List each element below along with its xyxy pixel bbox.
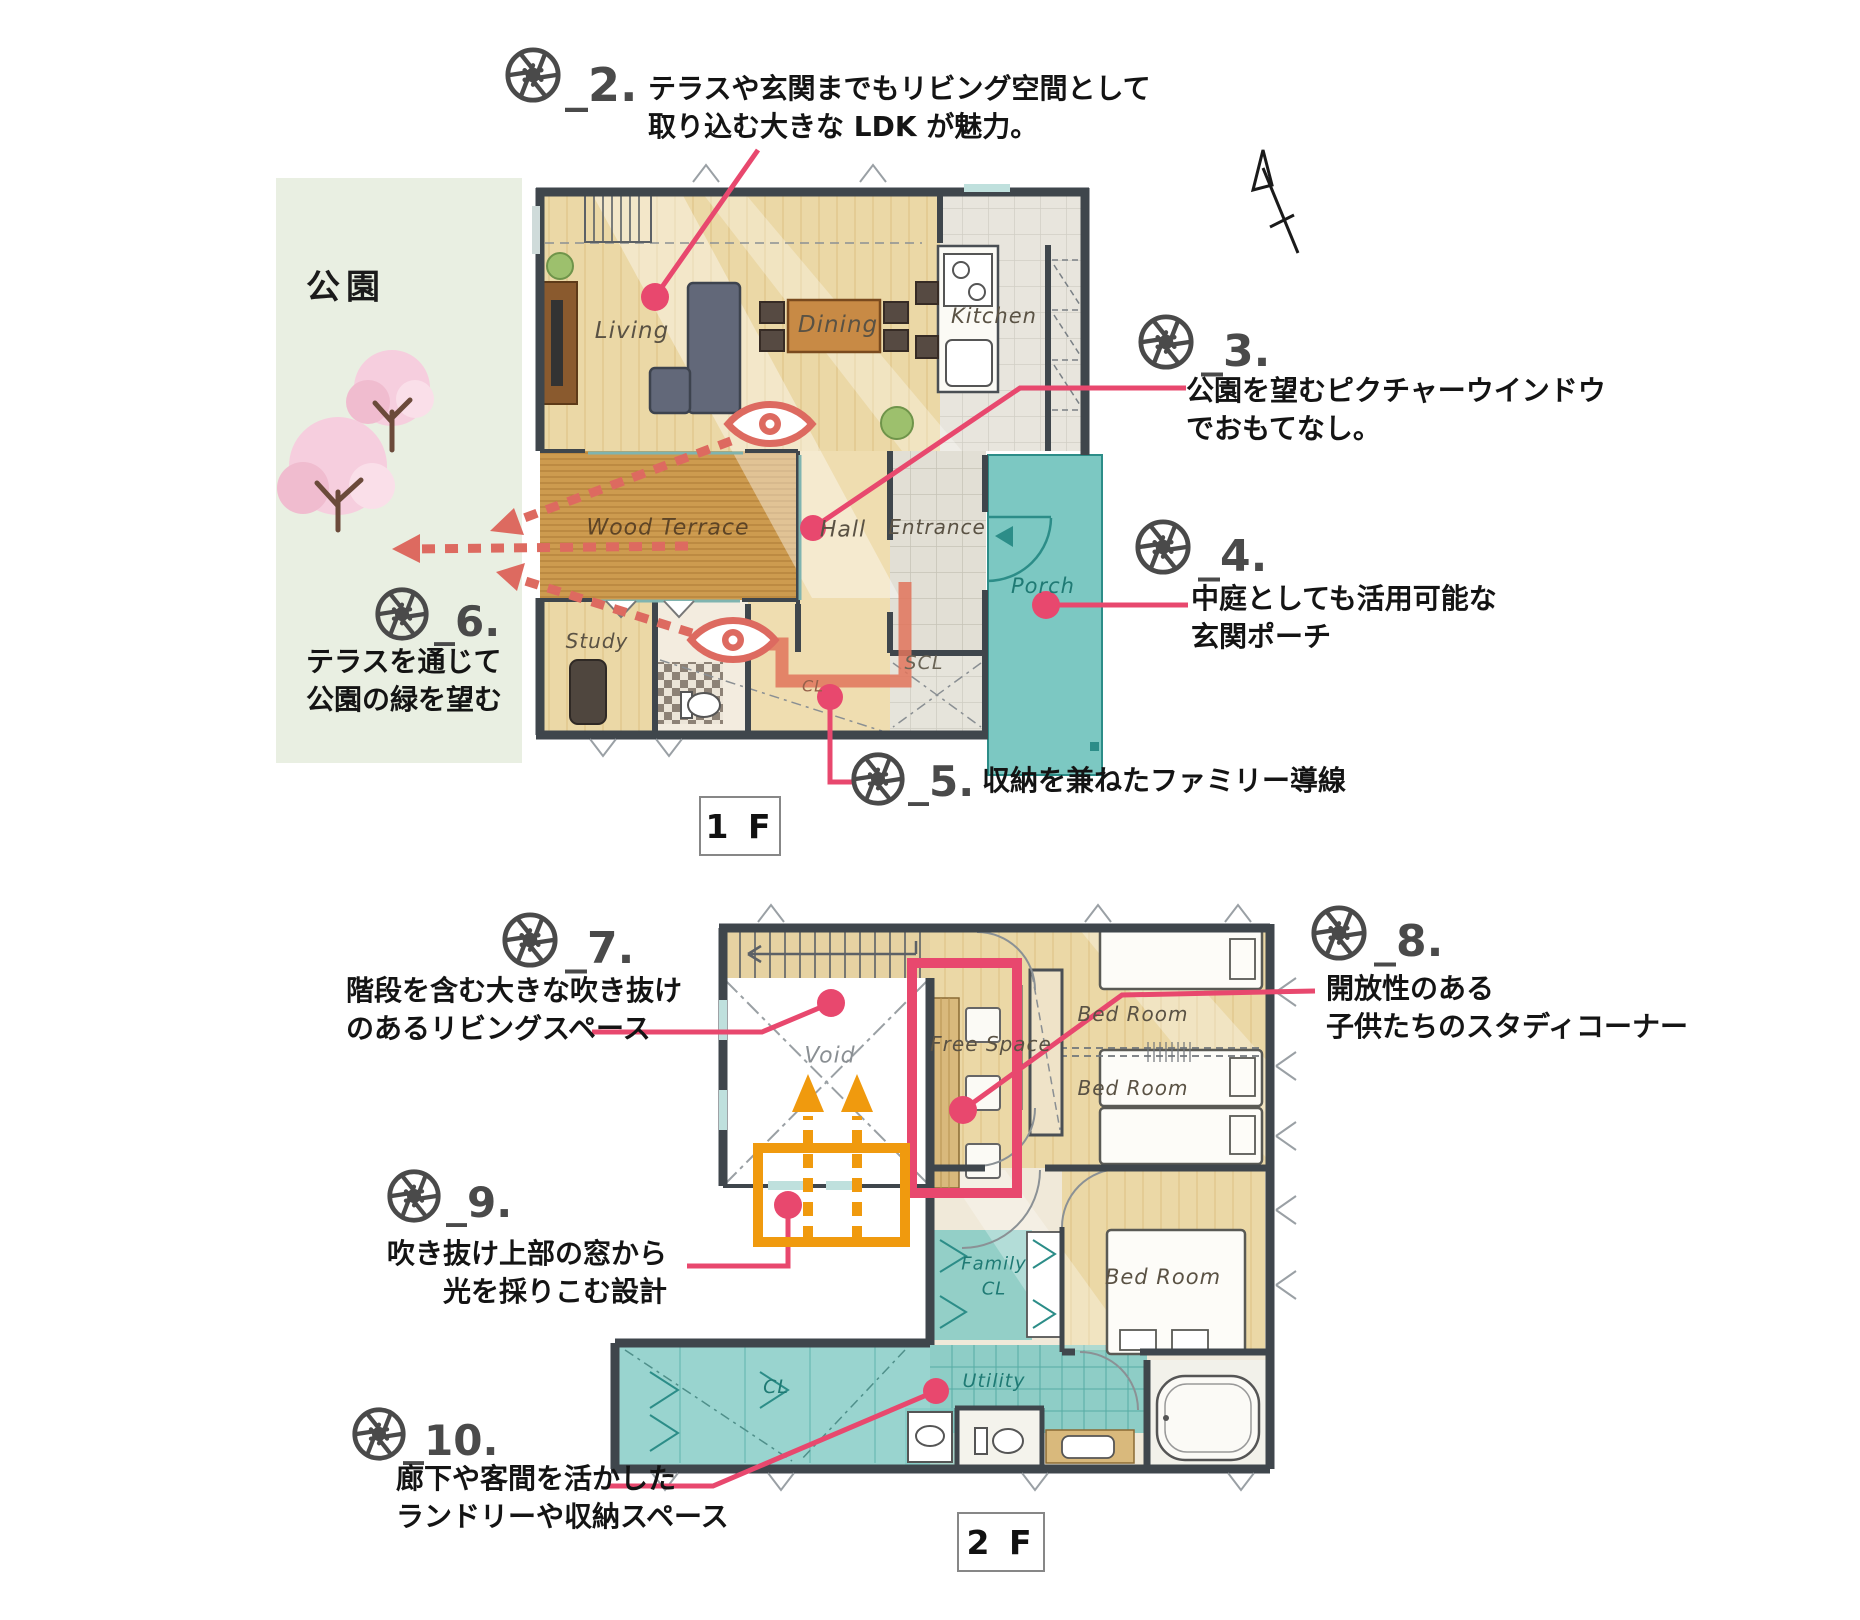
annotation-3-number: _3. — [1201, 326, 1270, 377]
room-label-family-cl-2: CL — [982, 1279, 1007, 1300]
annotation-line: 中庭としても活用可能な — [1191, 580, 1497, 618]
annotation-8-number: _8. — [1374, 916, 1443, 967]
room-label-scl: SCL — [905, 652, 944, 674]
annotation-line: 取り込む大きな LDK が魅力。 — [648, 108, 1151, 146]
annotation-8-text: 開放性のある 子供たちのスタディコーナー — [1326, 970, 1688, 1046]
room-label-family-cl: Family — [961, 1254, 1027, 1275]
camera-aperture-icon — [504, 46, 562, 104]
laundry-counter — [1046, 1430, 1134, 1463]
room-label-cl: CL — [802, 677, 824, 696]
study-desk — [570, 660, 606, 724]
room-label-cl-2f: CL — [763, 1376, 789, 1398]
annotation-line: テラスや玄関までもリビング空間として — [648, 70, 1151, 108]
floor-label-2f-text: 2 F — [967, 1523, 1036, 1562]
room-label-kitchen: Kitchen — [951, 304, 1037, 328]
annotation-line: 階段を含む大きな吹き抜け — [346, 972, 682, 1010]
annotation-line: でおもてなし。 — [1186, 410, 1606, 448]
floor-label-1f-text: 1 F — [706, 807, 775, 846]
room-label-utility: Utility — [963, 1370, 1026, 1392]
camera-aperture-icon — [1310, 904, 1368, 962]
camera-aperture-icon — [1134, 518, 1192, 576]
north-arrow-icon — [1253, 150, 1298, 253]
vanity-sink — [908, 1412, 952, 1462]
floor-plan-artwork — [0, 0, 1860, 1620]
annotation-7-text: 階段を含む大きな吹き抜け のあるリビングスペース — [346, 972, 682, 1048]
annotation-line: 収納を兼ねたファミリー導線 — [982, 762, 1346, 800]
annotation-line: 子供たちのスタディコーナー — [1326, 1008, 1688, 1046]
room-label-wood-terrace: Wood Terrace — [586, 516, 749, 541]
annotation-line: 公園を望むピクチャーウインドウ — [1186, 372, 1606, 410]
room-label-free-space: Free Space — [930, 1032, 1052, 1056]
annotation-line: のあるリビングスペース — [346, 1010, 682, 1048]
bathtub — [1157, 1376, 1259, 1460]
annotation-3-text: 公園を望むピクチャーウインドウ でおもてなし。 — [1186, 372, 1606, 448]
room-label-entrance: Entrance — [888, 515, 986, 539]
toilet — [681, 692, 720, 718]
annotation-5-number: _5. — [908, 757, 974, 806]
annotation-4-number: _4. — [1198, 531, 1267, 582]
annotation-6-number: _6. — [434, 597, 500, 646]
cl-room-floor — [615, 1343, 930, 1465]
floor-label-1f: 1 F — [699, 796, 781, 856]
toilet — [975, 1428, 1023, 1454]
floor-plan-page: 公園 Living Dining Kitchen Wood Terrace Ha… — [0, 0, 1860, 1620]
room-label-study: Study — [566, 629, 629, 653]
annotation-line: 開放性のある — [1326, 970, 1688, 1008]
annotation-9-text: 吹き抜け上部の窓から 光を採りこむ設計 — [337, 1235, 667, 1311]
camera-aperture-icon — [351, 1406, 407, 1462]
annotation-2-number: _2. — [565, 58, 637, 112]
annotation-2-text: テラスや玄関までもリビング空間として 取り込む大きな LDK が魅力。 — [648, 70, 1151, 146]
annotation-line: 光を採りこむ設計 — [337, 1273, 667, 1311]
camera-aperture-icon — [386, 1168, 442, 1224]
annotation-5-text: 収納を兼ねたファミリー導線 — [982, 762, 1346, 800]
plant — [881, 407, 913, 439]
park-label: 公園 — [306, 260, 386, 309]
camera-aperture-icon — [501, 911, 559, 969]
room-label-porch: Porch — [1011, 574, 1075, 598]
eye-icon — [728, 405, 812, 444]
room-label-bed-room-1: Bed Room — [1078, 1002, 1189, 1026]
room-label-bed-room-3: Bed Room — [1105, 1265, 1221, 1289]
plant — [547, 253, 573, 279]
camera-aperture-icon — [1137, 313, 1195, 371]
annotation-line: 公園の緑を望む — [306, 681, 502, 719]
tv — [551, 300, 563, 386]
eye-icon — [691, 621, 775, 660]
annotation-10-text: 廊下や客間を活かした ランドリーや収納スペース — [396, 1460, 729, 1536]
annotation-10-number: _10. — [403, 1416, 498, 1465]
annotation-line: ランドリーや収納スペース — [396, 1498, 729, 1536]
annotation-line: 玄関ポーチ — [1191, 618, 1497, 656]
floor-label-2f: 2 F — [957, 1512, 1045, 1572]
room-label-bed-room-2: Bed Room — [1078, 1076, 1189, 1100]
room-label-dining: Dining — [798, 312, 878, 338]
bed — [1107, 1230, 1245, 1354]
annotation-line: テラスを通じて — [306, 643, 502, 681]
annotation-line: 吹き抜け上部の窓から — [337, 1235, 667, 1273]
annotation-line: 廊下や客間を活かした — [396, 1460, 729, 1498]
room-label-hall: Hall — [820, 518, 866, 543]
annotation-9-number: _9. — [446, 1178, 512, 1227]
annotation-4-text: 中庭としても活用可能な 玄関ポーチ — [1191, 580, 1497, 656]
annotation-6-text: テラスを通じて 公園の緑を望む — [306, 643, 502, 719]
room-label-living: Living — [595, 318, 669, 344]
camera-aperture-icon — [374, 586, 430, 642]
room-label-void: Void — [804, 1044, 855, 1069]
annotation-7-number: _7. — [565, 923, 634, 974]
camera-aperture-icon — [850, 751, 906, 807]
